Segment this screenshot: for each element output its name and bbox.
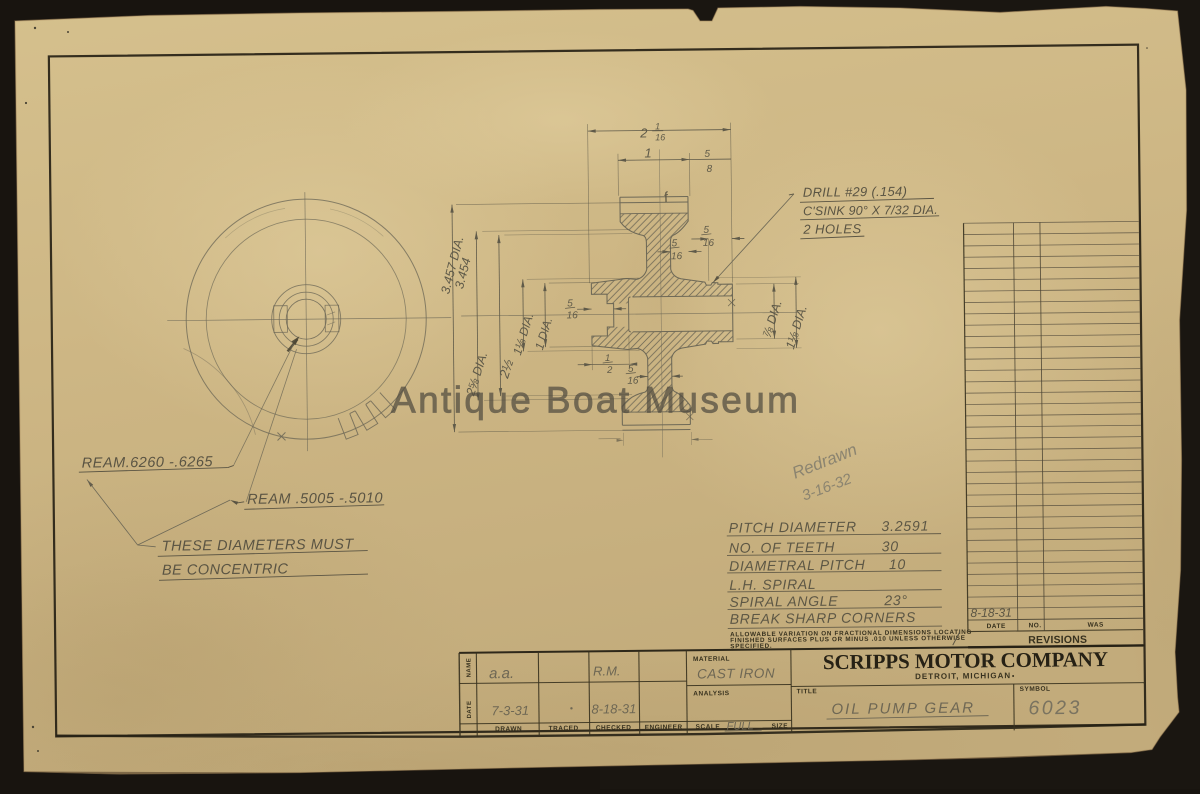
- svg-text:DRILL #29 (.154): DRILL #29 (.154): [803, 184, 907, 200]
- svg-text:SYMBOL: SYMBOL: [1020, 686, 1051, 693]
- svg-text:6023: 6023: [1028, 697, 1082, 720]
- svg-text:7-3-31: 7-3-31: [491, 703, 529, 718]
- svg-text:SCALE: SCALE: [696, 724, 721, 731]
- svg-text:ENGINEER: ENGINEER: [645, 724, 683, 731]
- svg-text:NO.: NO.: [1029, 622, 1042, 629]
- svg-text:NO. OF TEETH: NO. OF TEETH: [729, 539, 836, 556]
- svg-text:TITLE: TITLE: [797, 688, 818, 695]
- svg-text:OIL PUMP GEAR: OIL PUMP GEAR: [831, 699, 975, 718]
- svg-text:DETROIT, MICHIGAN: DETROIT, MICHIGAN: [915, 671, 1011, 681]
- svg-text:BREAK SHARP CORNERS: BREAK SHARP CORNERS: [730, 609, 916, 627]
- svg-text:NAME: NAME: [466, 658, 472, 678]
- svg-text:1: 1: [655, 121, 660, 131]
- svg-text:16: 16: [703, 238, 715, 249]
- svg-text:16: 16: [655, 132, 665, 142]
- svg-text:REVISIONS: REVISIONS: [1028, 634, 1087, 647]
- svg-text:30: 30: [882, 538, 899, 554]
- svg-text:L.H. SPIRAL: L.H. SPIRAL: [729, 576, 816, 593]
- svg-text:C'SINK 90° X 7/32 DIA.: C'SINK 90° X 7/32 DIA.: [803, 203, 938, 218]
- svg-text:BE CONCENTRIC: BE CONCENTRIC: [162, 561, 289, 578]
- svg-text:WAS: WAS: [1088, 622, 1105, 629]
- svg-text:23°: 23°: [883, 592, 908, 608]
- svg-text:R.M.: R.M.: [593, 663, 621, 678]
- svg-text:16: 16: [671, 251, 683, 262]
- svg-text:PITCH DIAMETER: PITCH DIAMETER: [729, 518, 857, 535]
- svg-text:2 HOLES: 2 HOLES: [802, 221, 862, 237]
- svg-text:3.2591: 3.2591: [881, 518, 929, 535]
- svg-text:DATE: DATE: [987, 623, 1006, 630]
- svg-text:10: 10: [889, 556, 906, 572]
- svg-text:5: 5: [704, 149, 710, 160]
- svg-text:SIZE: SIZE: [772, 723, 789, 730]
- svg-text:MATERIAL: MATERIAL: [693, 656, 730, 663]
- svg-text:DATE: DATE: [467, 701, 473, 719]
- svg-text:CHECKED: CHECKED: [596, 724, 632, 731]
- svg-text:CAST IRON: CAST IRON: [697, 666, 775, 682]
- svg-text:2: 2: [606, 365, 613, 376]
- svg-text:a.a.: a.a.: [489, 665, 514, 682]
- svg-text:8-18-31: 8-18-31: [970, 606, 1012, 620]
- svg-text:8-18-31: 8-18-31: [591, 701, 636, 716]
- svg-text:8: 8: [707, 164, 713, 175]
- svg-text:TRACED: TRACED: [549, 725, 579, 732]
- svg-text:DRAWN: DRAWN: [495, 726, 522, 733]
- svg-text:ANALYSIS: ANALYSIS: [693, 690, 730, 697]
- svg-text:SCRIPPS MOTOR COMPANY: SCRIPPS MOTOR COMPANY: [823, 647, 1109, 674]
- svg-text:SPIRAL ANGLE: SPIRAL ANGLE: [729, 593, 838, 610]
- svg-text:2: 2: [639, 125, 648, 140]
- svg-text:16: 16: [567, 310, 579, 321]
- svg-text:1: 1: [644, 145, 651, 160]
